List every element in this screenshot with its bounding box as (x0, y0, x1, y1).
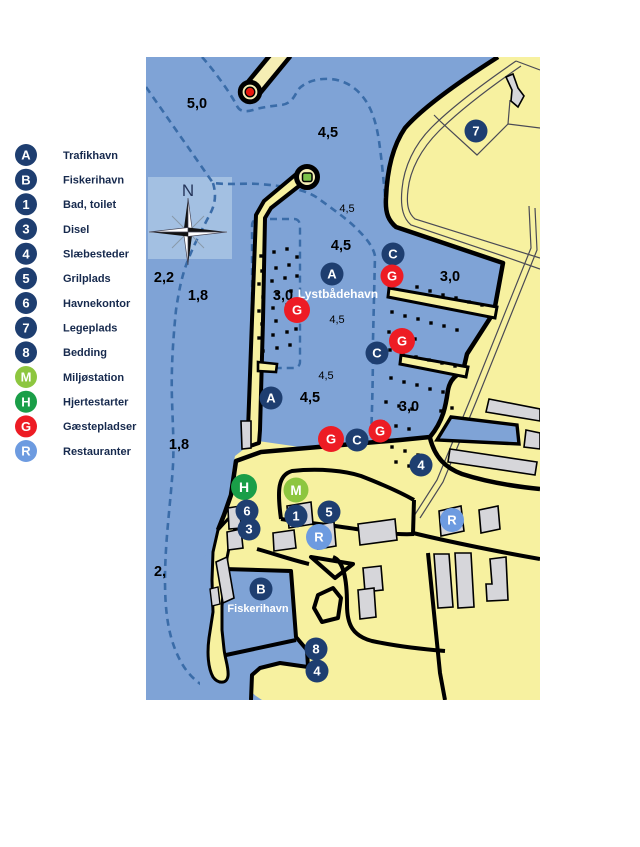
svg-text:Lystbådehavn: Lystbådehavn (298, 287, 378, 301)
svg-text:Bedding: Bedding (63, 347, 107, 359)
svg-text:Hjertestarter: Hjertestarter (63, 397, 129, 409)
svg-text:Gæstepladser: Gæstepladser (63, 421, 137, 433)
svg-text:G: G (326, 432, 336, 447)
svg-text:2,: 2, (154, 564, 166, 580)
svg-text:4,5: 4,5 (331, 238, 351, 254)
svg-text:4: 4 (417, 458, 425, 473)
svg-text:R: R (21, 444, 31, 459)
svg-text:Fiskerihavn: Fiskerihavn (63, 175, 124, 187)
svg-text:B: B (21, 172, 30, 187)
svg-text:Grilplads: Grilplads (63, 273, 111, 285)
svg-text:M: M (290, 483, 301, 498)
svg-text:G: G (292, 303, 302, 318)
svg-text:Fiskerihavn: Fiskerihavn (227, 603, 288, 615)
svg-text:4,5: 4,5 (318, 370, 333, 382)
svg-text:C: C (352, 433, 362, 448)
svg-text:4,5: 4,5 (339, 203, 354, 215)
svg-text:G: G (375, 424, 385, 439)
svg-text:Legeplads: Legeplads (63, 323, 117, 335)
svg-text:4,5: 4,5 (318, 125, 338, 141)
svg-text:4,5: 4,5 (329, 314, 344, 326)
svg-text:B: B (256, 582, 265, 597)
svg-text:A: A (266, 391, 276, 406)
svg-text:Miljøstation: Miljøstation (63, 372, 124, 384)
svg-text:A: A (21, 148, 31, 163)
svg-text:Disel: Disel (63, 224, 89, 236)
svg-text:8: 8 (312, 642, 319, 657)
svg-text:C: C (388, 247, 398, 262)
svg-text:G: G (397, 334, 407, 349)
svg-text:Bad, toilet: Bad, toilet (63, 199, 117, 211)
svg-text:1,8: 1,8 (188, 288, 208, 304)
svg-text:4: 4 (22, 246, 30, 261)
svg-text:R: R (314, 530, 324, 545)
svg-text:3,0: 3,0 (440, 269, 460, 285)
svg-text:N: N (182, 181, 194, 200)
svg-text:3: 3 (22, 222, 29, 237)
svg-text:H: H (21, 394, 30, 409)
svg-text:1,8: 1,8 (169, 437, 189, 453)
svg-text:M: M (21, 370, 32, 385)
svg-text:A: A (327, 267, 337, 282)
svg-text:6: 6 (243, 504, 250, 519)
svg-text:5,0: 5,0 (187, 96, 207, 112)
svg-text:Trafikhavn: Trafikhavn (63, 150, 118, 162)
svg-text:7: 7 (472, 124, 479, 139)
svg-text:7: 7 (22, 320, 29, 335)
svg-text:H: H (239, 479, 249, 495)
svg-text:1: 1 (22, 197, 29, 212)
svg-text:Restauranter: Restauranter (63, 446, 132, 458)
svg-text:1: 1 (292, 509, 299, 524)
svg-text:G: G (387, 269, 397, 284)
svg-text:2,2: 2,2 (154, 270, 174, 286)
svg-text:4: 4 (313, 664, 321, 679)
svg-text:5: 5 (22, 271, 29, 286)
svg-text:R: R (447, 513, 457, 528)
svg-text:5: 5 (325, 505, 332, 520)
svg-text:Slæbesteder: Slæbesteder (63, 249, 130, 261)
svg-text:G: G (21, 419, 31, 434)
svg-text:3: 3 (245, 522, 252, 537)
svg-text:4,5: 4,5 (300, 390, 320, 406)
svg-text:C: C (372, 346, 382, 361)
svg-text:6: 6 (22, 296, 29, 311)
svg-text:8: 8 (22, 345, 29, 360)
svg-text:Havnekontor: Havnekontor (63, 298, 131, 310)
svg-text:3,0: 3,0 (399, 399, 419, 415)
